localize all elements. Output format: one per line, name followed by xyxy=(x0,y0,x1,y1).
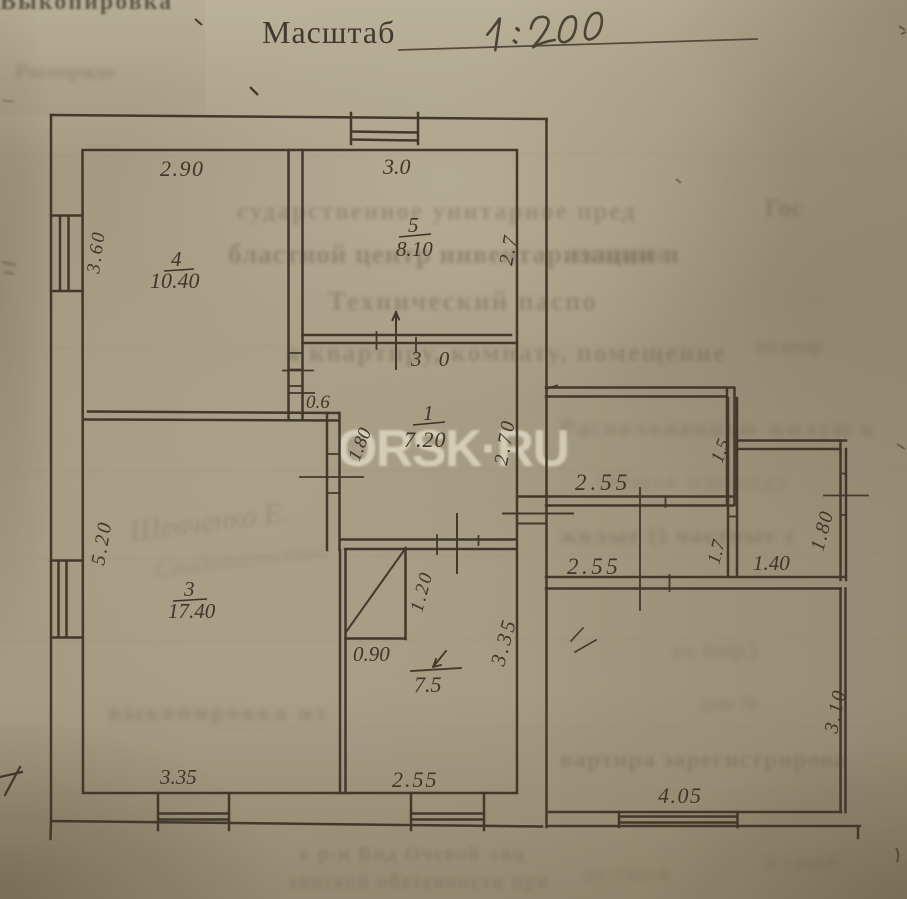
svg-text:рн такой: рн такой xyxy=(585,864,670,885)
svg-text:выкопировка из: выкопировка из xyxy=(108,700,328,726)
svg-text:5: 5 xyxy=(408,213,419,237)
svg-text:ул. (пер.): ул. (пер.) xyxy=(672,637,757,662)
svg-text:Масштаб: Масштаб xyxy=(262,14,395,50)
svg-text:е р-н Вид Очевой лиц: е р-н Вид Очевой лиц xyxy=(300,843,525,865)
svg-text:лизации: лизации xyxy=(567,239,665,268)
svg-text:3.0: 3.0 xyxy=(382,154,411,179)
svg-text:0.6: 0.6 xyxy=(306,392,330,413)
svg-text:2.90: 2.90 xyxy=(160,156,205,181)
svg-text:й такой: й такой xyxy=(765,852,839,873)
svg-text:7.5: 7.5 xyxy=(414,672,442,697)
svg-text:2.55: 2.55 xyxy=(575,470,631,495)
svg-text:Гос: Гос xyxy=(765,195,802,222)
svg-text:Выкопировка: Выкопировка xyxy=(0,0,173,15)
svg-text:на квар: на квар xyxy=(756,336,822,357)
svg-text:дом №: дом № xyxy=(700,691,759,715)
svg-text:ORSK·RU: ORSK·RU xyxy=(337,420,572,478)
svg-text:апиской обязанности при: апиской обязанности при xyxy=(288,871,550,893)
svg-text:3 0: 3 0 xyxy=(410,347,455,371)
svg-text:3: 3 xyxy=(183,577,195,601)
svg-text:жилые () частные с: жилые () частные с xyxy=(560,523,797,548)
svg-text:сударственное унитарное пред: сударственное унитарное пред xyxy=(237,198,637,225)
svg-text:8.10: 8.10 xyxy=(396,237,433,261)
svg-text:0.90: 0.90 xyxy=(353,642,390,666)
svg-text:Распорядо: Распорядо xyxy=(15,59,114,83)
svg-text:вартира зарегистрирова: вартира зарегистрирова xyxy=(560,747,847,773)
svg-text:Технический паспо: Технический паспо xyxy=(328,286,598,316)
svg-text:1: 1 xyxy=(423,401,434,425)
svg-text:2.55: 2.55 xyxy=(567,554,621,579)
svg-text:2.55: 2.55 xyxy=(392,767,439,792)
svg-text:17.40: 17.40 xyxy=(168,599,216,623)
svg-text:3.35: 3.35 xyxy=(159,765,197,789)
svg-text:10.40: 10.40 xyxy=(150,268,200,293)
svg-text:7.20: 7.20 xyxy=(404,427,447,452)
svg-text:1.40: 1.40 xyxy=(753,551,790,575)
svg-text:4.05: 4.05 xyxy=(658,783,703,808)
